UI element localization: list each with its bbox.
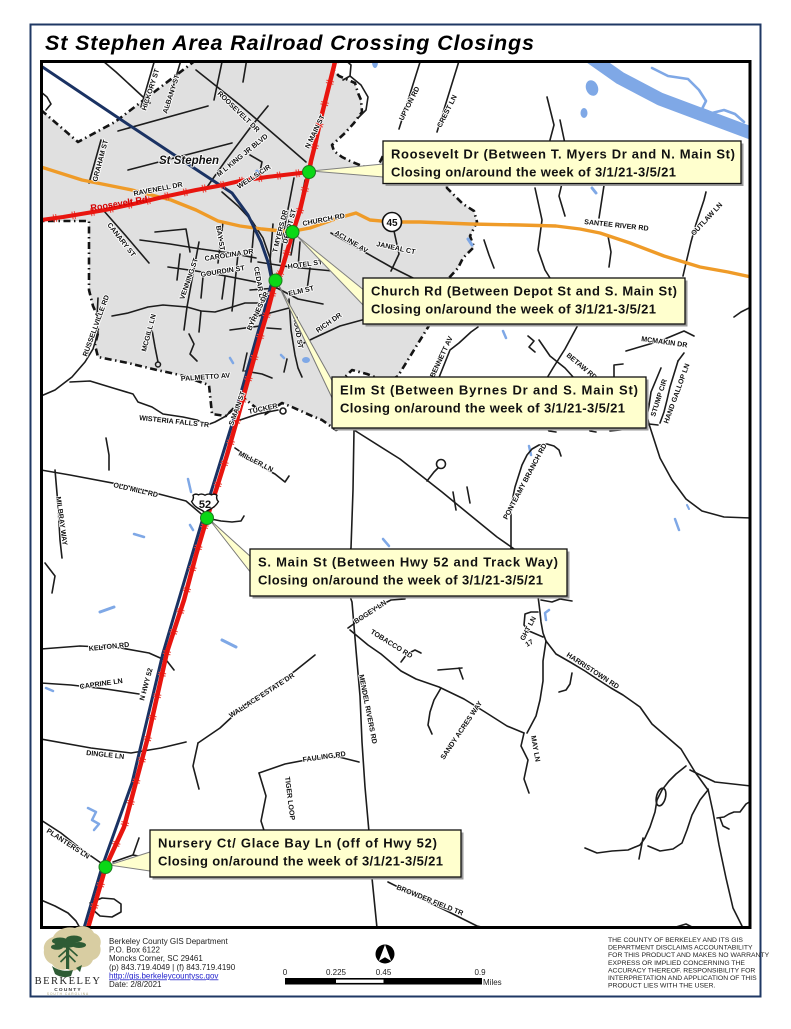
svg-text:0.225: 0.225 bbox=[326, 968, 347, 977]
svg-text:Elm St (Between Byrnes Dr and: Elm St (Between Byrnes Dr and S. Main St… bbox=[340, 383, 638, 398]
svg-text:INTERPRETATION AND APPLICATION: INTERPRETATION AND APPLICATION OF THIS bbox=[608, 975, 757, 982]
svg-text:Closing on/around the week of: Closing on/around the week of 3/1/21-3/5… bbox=[158, 854, 443, 869]
svg-text:PRODUCT LIES WITH THE USER.: PRODUCT LIES WITH THE USER. bbox=[608, 983, 715, 990]
svg-text:45: 45 bbox=[386, 218, 398, 229]
svg-text:THE COUNTY OF BERKELEY AND ITS: THE COUNTY OF BERKELEY AND ITS GIS bbox=[608, 937, 743, 944]
svg-text:Closing on/around the week of: Closing on/around the week of 3/1/21-3/5… bbox=[258, 573, 543, 588]
svg-text:ACCURACY THEREOF. RESPONSIBIL: ACCURACY THEREOF. RESPONSIBILITY FOR bbox=[608, 967, 755, 974]
svg-text:DEPARTMENT DISCLAIMS ACCOUNTAB: DEPARTMENT DISCLAIMS ACCOUNTABILITY bbox=[608, 945, 753, 952]
svg-text:Closing on/around the week of: Closing on/around the week of 3/1/21-3/5… bbox=[391, 165, 676, 180]
svg-text:Miles: Miles bbox=[483, 978, 502, 987]
svg-text:Nursery Ct/ Glace Bay Ln (off: Nursery Ct/ Glace Bay Ln (off of Hwy 52) bbox=[158, 836, 437, 851]
svg-text:52: 52 bbox=[199, 499, 211, 511]
svg-text:St Stephen Area Railroad Cross: St Stephen Area Railroad Crossing Closin… bbox=[45, 31, 534, 55]
svg-text:Roosevelt Dr (Between T. Myers: Roosevelt Dr (Between T. Myers Dr and N.… bbox=[391, 147, 735, 162]
svg-text:Date: 2/8/2021: Date: 2/8/2021 bbox=[109, 980, 162, 989]
svg-text:FOR THIS PRODUCT AND MAKES NO: FOR THIS PRODUCT AND MAKES NO WARRANTY bbox=[608, 952, 770, 959]
svg-text:Closing on/around the week of: Closing on/around the week of 3/1/21-3/5… bbox=[371, 302, 656, 317]
svg-text:0.45: 0.45 bbox=[376, 968, 392, 977]
svg-text:Closing on/around the week of: Closing on/around the week of 3/1/21-3/5… bbox=[340, 401, 625, 416]
svg-text:SOUTH CAROLINA: SOUTH CAROLINA bbox=[47, 992, 89, 996]
svg-text:0: 0 bbox=[283, 968, 288, 977]
svg-text:St Stephen: St Stephen bbox=[159, 155, 219, 167]
svg-text:S. Main St (Between Hwy 52 and: S. Main St (Between Hwy 52 and Track Way… bbox=[258, 555, 558, 570]
svg-text:Church Rd (Between Depot St an: Church Rd (Between Depot St and S. Main … bbox=[371, 284, 677, 299]
svg-text:0.9: 0.9 bbox=[474, 968, 486, 977]
svg-text:BERKELEY: BERKELEY bbox=[35, 976, 102, 987]
svg-text:EXPRESS OR IMPLIED CONCERNING: EXPRESS OR IMPLIED CONCERNING THE bbox=[608, 960, 745, 967]
